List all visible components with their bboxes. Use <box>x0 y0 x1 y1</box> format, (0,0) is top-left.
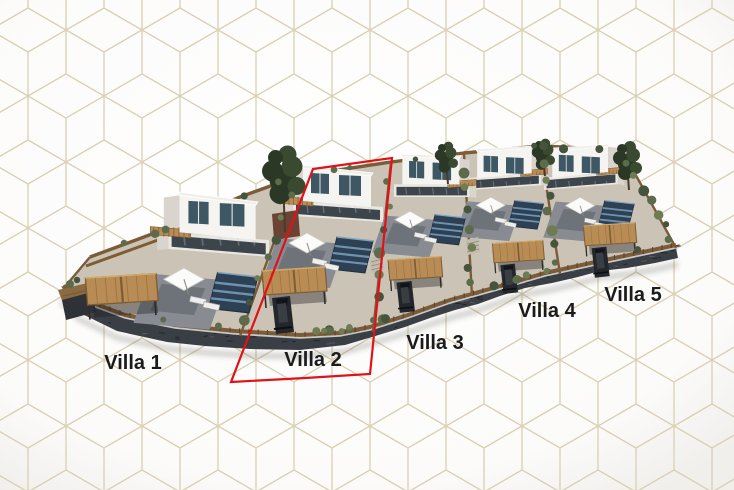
villa-site-plan: Villa 1 Villa 2 Villa 3 Villa 4 Villa 5 <box>0 0 734 490</box>
villa-4-label: Villa 4 <box>518 300 576 322</box>
villa-1-pergola <box>85 274 158 320</box>
villa-1-building <box>150 192 269 257</box>
site-plan-rendering: Villa 1 Villa 2 Villa 3 Villa 4 Villa 5 <box>0 0 734 490</box>
villa-2-label: Villa 2 <box>284 349 341 371</box>
villa-1-label: Villa 1 <box>104 352 161 374</box>
villa-3-label: Villa 3 <box>406 332 463 354</box>
villa-5-building <box>544 144 624 190</box>
villa-5-label: Villa 5 <box>604 284 661 306</box>
